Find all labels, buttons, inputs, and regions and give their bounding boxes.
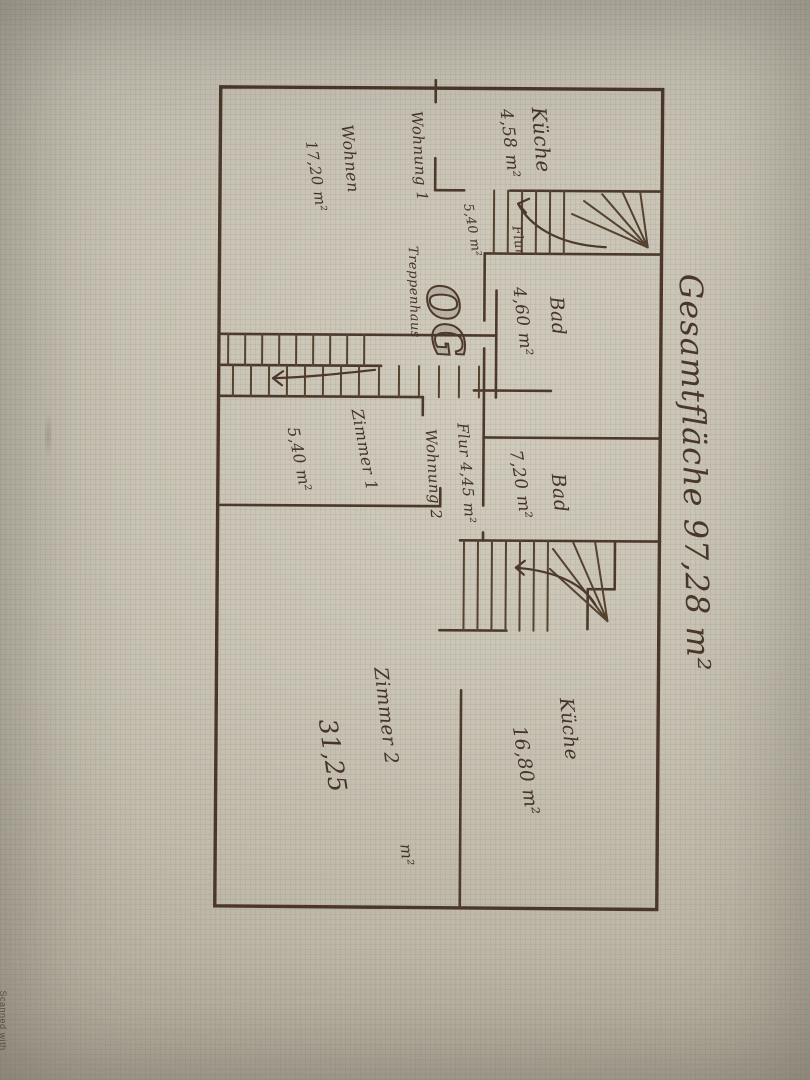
stairwell-label: Treppenhaus xyxy=(405,246,423,338)
room-zimmer2-unit: m² xyxy=(396,843,417,868)
floor-label: OG xyxy=(416,281,475,363)
floorplan-drawing xyxy=(0,0,810,1080)
floorplan-photo: Gesamtfläche 97,28 m² xyxy=(0,0,810,1080)
room-bad2-name: Bad xyxy=(547,473,572,514)
rotated-sheet-layer: Gesamtfläche 97,28 m² xyxy=(0,0,810,1080)
scanner-watermark: Scanned with xyxy=(0,991,8,1051)
room-bad1-name: Bad xyxy=(545,296,569,336)
direction-arrows xyxy=(272,197,606,605)
sheet-content: Gesamtfläche 97,28 m² xyxy=(0,0,810,1080)
